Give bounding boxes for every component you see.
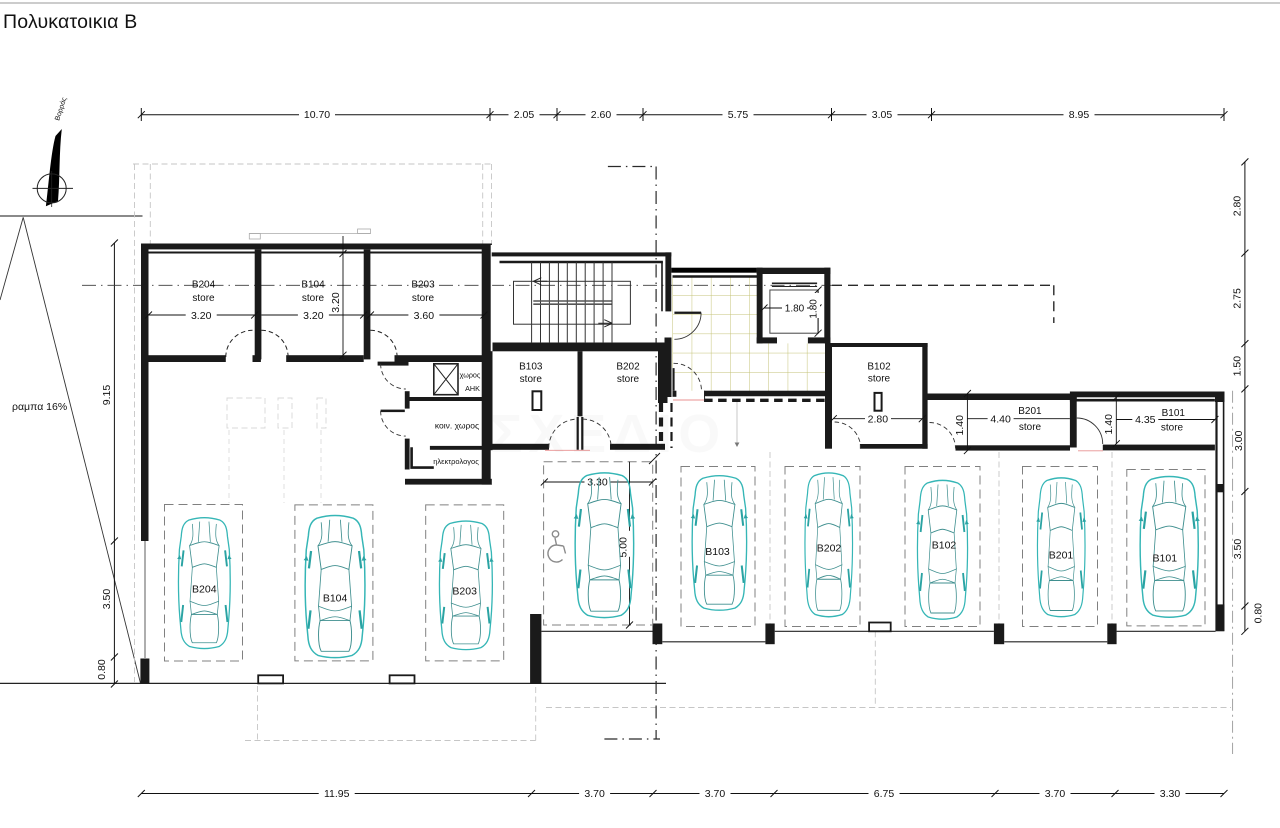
svg-text:store: store: [1019, 422, 1042, 433]
svg-text:5.75: 5.75: [728, 109, 749, 121]
svg-text:3.70: 3.70: [705, 788, 726, 800]
svg-text:store: store: [520, 374, 543, 385]
svg-text:3.00: 3.00: [1233, 430, 1245, 451]
svg-text:3.50: 3.50: [1232, 539, 1244, 560]
svg-text:ραμπα 16%: ραμπα 16%: [12, 401, 67, 413]
svg-text:store: store: [868, 374, 891, 385]
svg-text:11.95: 11.95: [324, 788, 350, 800]
svg-text:3.70: 3.70: [1045, 788, 1066, 800]
svg-text:1.40: 1.40: [954, 415, 966, 436]
svg-text:B203: B203: [411, 280, 435, 291]
svg-text:B204: B204: [192, 583, 217, 595]
svg-text:2.05: 2.05: [514, 109, 535, 121]
svg-text:3.20: 3.20: [303, 310, 324, 322]
svg-text:ΑΗΚ: ΑΗΚ: [465, 384, 480, 393]
svg-text:3.60: 3.60: [414, 310, 435, 322]
svg-text:2.75: 2.75: [1231, 288, 1243, 309]
svg-text:1.50: 1.50: [1231, 356, 1243, 377]
svg-text:0.80: 0.80: [96, 659, 108, 680]
svg-text:B201: B201: [1049, 550, 1074, 562]
svg-text:store: store: [412, 293, 435, 304]
svg-text:B201: B201: [1018, 406, 1042, 417]
svg-text:χωρος: χωρος: [460, 371, 481, 380]
svg-text:B101: B101: [1162, 408, 1186, 419]
svg-text:10.70: 10.70: [304, 109, 330, 121]
svg-text:B101: B101: [1153, 552, 1178, 564]
svg-text:3.50: 3.50: [101, 589, 113, 610]
svg-text:store: store: [192, 293, 215, 304]
svg-text:4.40: 4.40: [990, 413, 1011, 425]
svg-text:B204: B204: [192, 280, 216, 291]
svg-text:3.20: 3.20: [330, 292, 342, 313]
svg-text:B102: B102: [867, 362, 891, 373]
svg-text:3.30: 3.30: [1160, 788, 1181, 800]
svg-text:ηλεκτρολογος: ηλεκτρολογος: [433, 457, 479, 466]
svg-text:B103: B103: [519, 361, 543, 372]
svg-text:6.75: 6.75: [874, 788, 895, 800]
svg-text:3.70: 3.70: [584, 788, 605, 800]
svg-text:3.20: 3.20: [191, 310, 212, 322]
svg-text:ΣΧΕΔΙΟ: ΣΧΕΔΙΟ: [490, 404, 726, 464]
svg-text:B104: B104: [301, 280, 325, 291]
svg-text:B102: B102: [932, 540, 957, 552]
svg-text:κοιν. χωρος: κοιν. χωρος: [435, 421, 479, 431]
svg-text:B103: B103: [705, 546, 730, 558]
svg-text:2.60: 2.60: [591, 109, 612, 121]
svg-text:4.35: 4.35: [1135, 414, 1156, 426]
svg-text:2.80: 2.80: [1231, 196, 1243, 217]
svg-text:B202: B202: [817, 543, 842, 555]
svg-text:store: store: [302, 293, 325, 304]
svg-text:Πολυκατοικια Β: Πολυκατοικια Β: [3, 11, 137, 33]
svg-text:store: store: [617, 374, 640, 385]
svg-text:3.05: 3.05: [872, 109, 893, 121]
svg-text:B202: B202: [616, 361, 640, 372]
svg-text:0.80: 0.80: [1253, 603, 1265, 624]
svg-text:1.80: 1.80: [785, 304, 805, 315]
svg-text:B104: B104: [323, 592, 348, 604]
svg-text:store: store: [1161, 423, 1184, 434]
svg-text:1.40: 1.40: [1103, 414, 1115, 435]
svg-text:1.80: 1.80: [809, 299, 820, 319]
svg-text:9.15: 9.15: [101, 385, 113, 406]
svg-text:8.95: 8.95: [1069, 109, 1090, 121]
svg-text:B203: B203: [452, 586, 477, 598]
svg-text:3.30: 3.30: [587, 477, 608, 489]
svg-text:2.80: 2.80: [868, 413, 889, 425]
